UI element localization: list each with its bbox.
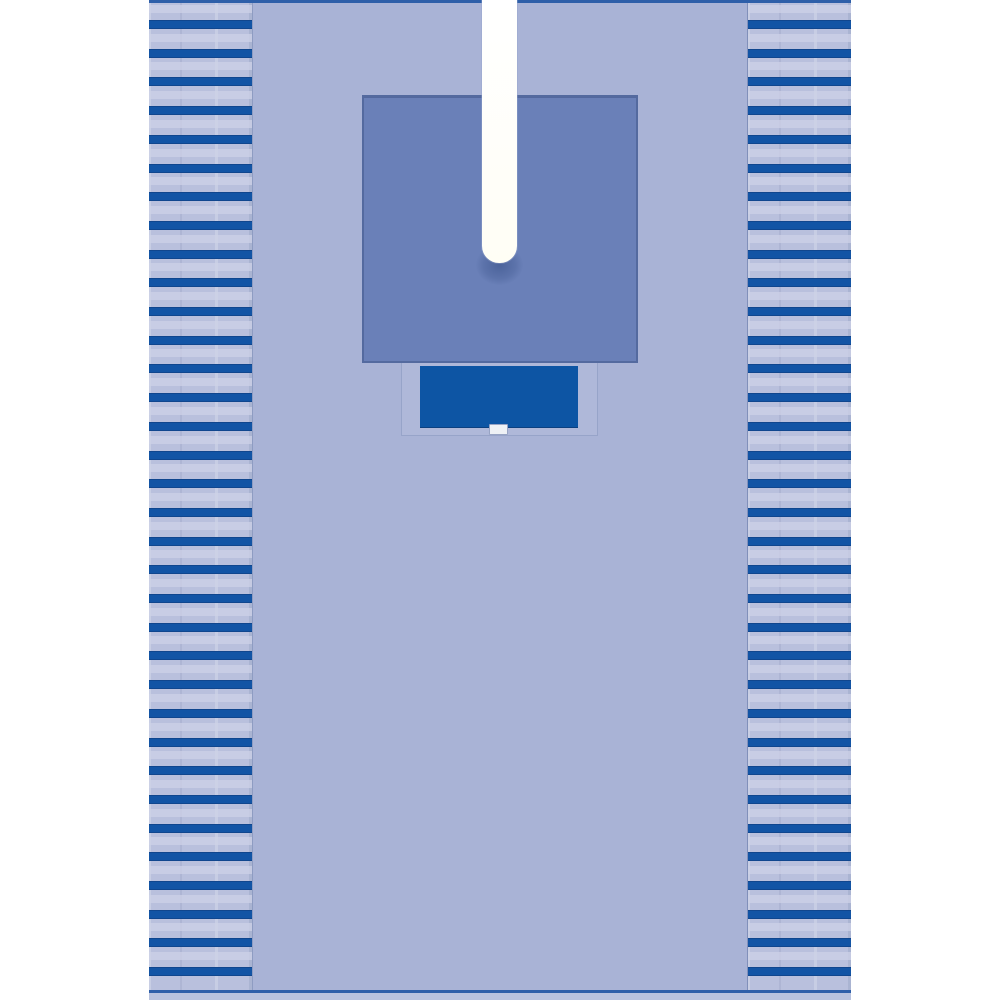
fringe-fold-highlight bbox=[149, 349, 252, 357]
fringe-pleat-stripe bbox=[149, 20, 252, 29]
fringe-fold-highlight bbox=[149, 522, 252, 530]
fringe-pleat-stripe bbox=[149, 422, 252, 431]
adhesive-pouch bbox=[420, 366, 578, 428]
fringe-fold-highlight bbox=[149, 550, 252, 558]
fringe-fold-highlight bbox=[149, 464, 252, 472]
fringe-pleat-stripe bbox=[748, 336, 851, 345]
fringe-pleat-stripe bbox=[149, 738, 252, 747]
fringe-fold-highlight bbox=[748, 809, 851, 817]
fringe-pleat-stripe bbox=[149, 164, 252, 173]
fringe-fold-highlight bbox=[748, 665, 851, 673]
fringe-fold-highlight bbox=[149, 608, 252, 616]
product-photo-canvas bbox=[0, 0, 1000, 1000]
fringe-pleat-stripe bbox=[748, 537, 851, 546]
fringe-fold-highlight bbox=[149, 952, 252, 960]
fringe-pleat-stripe bbox=[748, 479, 851, 488]
fringe-pleat-stripe bbox=[748, 278, 851, 287]
fringe-fold-highlight bbox=[748, 636, 851, 644]
fringe-fold-highlight bbox=[149, 34, 252, 42]
fringe-pleat-stripe bbox=[748, 20, 851, 29]
fringe-fold-highlight bbox=[748, 579, 851, 587]
fringe-fold-highlight bbox=[149, 694, 252, 702]
fringe-fold-highlight bbox=[149, 91, 252, 99]
fringe-pleat-stripe bbox=[748, 967, 851, 976]
fringe-pleat-stripe bbox=[149, 336, 252, 345]
fringe-fold-highlight bbox=[149, 120, 252, 128]
fringe-fold-highlight bbox=[149, 636, 252, 644]
fringe-pleat-stripe bbox=[748, 651, 851, 660]
fringe-pleat-stripe bbox=[149, 910, 252, 919]
fringe-fold-highlight bbox=[748, 895, 851, 903]
fringe-fold-highlight bbox=[748, 177, 851, 185]
fringe-pleat-stripe bbox=[748, 680, 851, 689]
fringe-fold-highlight bbox=[149, 263, 252, 271]
fringe-pleat-stripe bbox=[748, 910, 851, 919]
fringe-fold-highlight bbox=[748, 34, 851, 42]
fringe-fold-highlight bbox=[748, 91, 851, 99]
fringe-pleat-stripe bbox=[149, 766, 252, 775]
fringe-pleat-stripe bbox=[748, 709, 851, 718]
fringe-pleat-stripe bbox=[149, 49, 252, 58]
fringe-pleat-stripe bbox=[149, 135, 252, 144]
fringe-pleat-stripe bbox=[149, 278, 252, 287]
fringe-fold-highlight bbox=[149, 206, 252, 214]
fringe-pleat-stripe bbox=[149, 537, 252, 546]
fringe-pleat-stripe bbox=[149, 795, 252, 804]
fringe-fold-highlight bbox=[748, 149, 851, 157]
fringe-pleat-stripe bbox=[748, 77, 851, 86]
fringe-pleat-stripe bbox=[149, 479, 252, 488]
drape-bottom-hem bbox=[149, 993, 851, 1000]
fringe-fold-highlight bbox=[748, 5, 851, 13]
fringe-fold-highlight bbox=[748, 349, 851, 357]
fringe-fold-highlight bbox=[149, 321, 252, 329]
fringe-fold-highlight bbox=[149, 723, 252, 731]
left-pleated-fringe bbox=[149, 0, 253, 993]
fringe-pleat-stripe bbox=[149, 192, 252, 201]
fringe-fold-highlight bbox=[748, 378, 851, 386]
fringe-pleat-stripe bbox=[149, 77, 252, 86]
fringe-pleat-stripe bbox=[748, 49, 851, 58]
fringe-pleat-stripe bbox=[748, 594, 851, 603]
fringe-pleat-stripe bbox=[149, 824, 252, 833]
fringe-pleat-stripe bbox=[149, 938, 252, 947]
fringe-pleat-stripe bbox=[748, 135, 851, 144]
fringe-fold-highlight bbox=[748, 292, 851, 300]
fringe-pleat-stripe bbox=[748, 824, 851, 833]
fringe-pleat-stripe bbox=[748, 938, 851, 947]
fringe-fold-highlight bbox=[149, 5, 252, 13]
fringe-pleat-stripe bbox=[149, 106, 252, 115]
fringe-fold-highlight bbox=[748, 263, 851, 271]
fringe-pleat-stripe bbox=[748, 106, 851, 115]
fringe-fold-highlight bbox=[149, 62, 252, 70]
fringe-pleat-stripe bbox=[149, 451, 252, 460]
fringe-fold-highlight bbox=[748, 608, 851, 616]
fringe-pleat-stripe bbox=[748, 164, 851, 173]
fringe-pleat-stripe bbox=[149, 565, 252, 574]
fringe-fold-highlight bbox=[149, 751, 252, 759]
fringe-fold-highlight bbox=[748, 407, 851, 415]
fringe-fold-highlight bbox=[748, 62, 851, 70]
fringe-pleat-stripe bbox=[748, 221, 851, 230]
fringe-fold-highlight bbox=[748, 723, 851, 731]
fringe-fold-highlight bbox=[748, 694, 851, 702]
fringe-pleat-stripe bbox=[149, 307, 252, 316]
fringe-pleat-stripe bbox=[748, 623, 851, 632]
fringe-fold-highlight bbox=[748, 952, 851, 960]
fringe-pleat-stripe bbox=[748, 565, 851, 574]
fringe-pleat-stripe bbox=[149, 221, 252, 230]
fringe-pleat-stripe bbox=[748, 508, 851, 517]
fringe-fold-highlight bbox=[149, 177, 252, 185]
fringe-fold-highlight bbox=[149, 149, 252, 157]
fringe-fold-highlight bbox=[748, 493, 851, 501]
fringe-fold-highlight bbox=[748, 464, 851, 472]
fringe-pleat-stripe bbox=[748, 738, 851, 747]
fringe-fold-highlight bbox=[748, 550, 851, 558]
fringe-fold-highlight bbox=[149, 923, 252, 931]
fringe-fold-highlight bbox=[149, 837, 252, 845]
fringe-pleat-stripe bbox=[748, 881, 851, 890]
fringe-fold-highlight bbox=[149, 436, 252, 444]
fringe-pleat-stripe bbox=[748, 393, 851, 402]
fringe-fold-highlight bbox=[748, 751, 851, 759]
fringe-pleat-stripe bbox=[748, 307, 851, 316]
fringe-pleat-stripe bbox=[748, 422, 851, 431]
fringe-pleat-stripe bbox=[748, 250, 851, 259]
fringe-pleat-stripe bbox=[149, 250, 252, 259]
fringe-pleat-stripe bbox=[748, 766, 851, 775]
fringe-fold-highlight bbox=[748, 120, 851, 128]
fringe-fold-highlight bbox=[149, 780, 252, 788]
fringe-fold-highlight bbox=[149, 407, 252, 415]
fringe-fold-highlight bbox=[748, 522, 851, 530]
fringe-pleat-stripe bbox=[149, 967, 252, 976]
fringe-pleat-stripe bbox=[748, 852, 851, 861]
fringe-fold-highlight bbox=[748, 923, 851, 931]
fringe-pleat-stripe bbox=[149, 651, 252, 660]
fringe-pleat-stripe bbox=[149, 364, 252, 373]
right-pleated-fringe bbox=[747, 0, 851, 993]
fringe-fold-highlight bbox=[149, 895, 252, 903]
fringe-fold-highlight bbox=[748, 206, 851, 214]
fringe-pleat-stripe bbox=[149, 881, 252, 890]
fringe-pleat-stripe bbox=[748, 795, 851, 804]
fringe-fold-highlight bbox=[149, 235, 252, 243]
fringe-pleat-stripe bbox=[149, 623, 252, 632]
fringe-fold-highlight bbox=[748, 436, 851, 444]
fringe-fold-highlight bbox=[748, 235, 851, 243]
fringe-pleat-stripe bbox=[149, 594, 252, 603]
fringe-pleat-stripe bbox=[149, 680, 252, 689]
fringe-fold-highlight bbox=[149, 493, 252, 501]
fringe-pleat-stripe bbox=[149, 709, 252, 718]
pouch-tab bbox=[489, 424, 508, 435]
fringe-fold-highlight bbox=[748, 780, 851, 788]
fringe-fold-highlight bbox=[748, 866, 851, 874]
fringe-pleat-stripe bbox=[149, 393, 252, 402]
fringe-fold-highlight bbox=[748, 321, 851, 329]
fringe-fold-highlight bbox=[149, 292, 252, 300]
fringe-fold-highlight bbox=[149, 665, 252, 673]
fringe-pleat-stripe bbox=[149, 508, 252, 517]
fringe-fold-highlight bbox=[748, 837, 851, 845]
fringe-pleat-stripe bbox=[748, 451, 851, 460]
fringe-fold-highlight bbox=[149, 866, 252, 874]
fringe-pleat-stripe bbox=[748, 192, 851, 201]
fringe-pleat-stripe bbox=[748, 364, 851, 373]
fringe-fold-highlight bbox=[149, 579, 252, 587]
fringe-fold-highlight bbox=[149, 809, 252, 817]
fringe-fold-highlight bbox=[149, 378, 252, 386]
fenestration-slit bbox=[482, 0, 517, 263]
fringe-pleat-stripe bbox=[149, 852, 252, 861]
